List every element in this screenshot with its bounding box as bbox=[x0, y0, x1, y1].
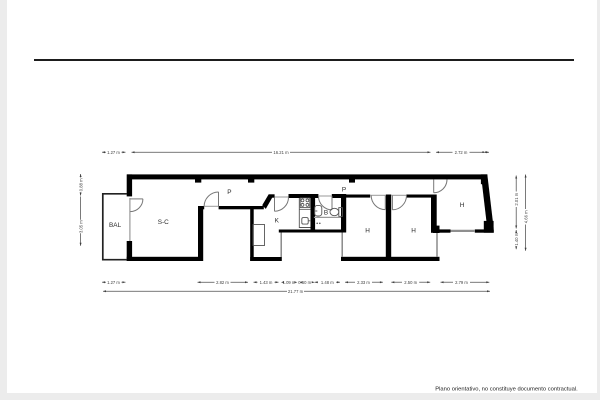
svg-text:21.77 m: 21.77 m bbox=[288, 289, 304, 294]
svg-text:16.21 m: 16.21 m bbox=[273, 150, 289, 155]
svg-text:BAL: BAL bbox=[109, 222, 122, 229]
svg-text:H: H bbox=[411, 227, 416, 234]
svg-text:S-C: S-C bbox=[158, 219, 169, 226]
svg-text:2.50 m: 2.50 m bbox=[404, 280, 417, 285]
svg-text:2.33 m: 2.33 m bbox=[357, 280, 370, 285]
svg-text:B: B bbox=[324, 210, 328, 217]
svg-text:1.48 m: 1.48 m bbox=[321, 280, 334, 285]
svg-text:1.27 m: 1.27 m bbox=[107, 150, 120, 155]
svg-text:2.82 m: 2.82 m bbox=[216, 280, 229, 285]
svg-text:Plano orientativo, no constitu: Plano orientativo, no constituye documen… bbox=[435, 386, 578, 392]
svg-text:1.09 m: 1.09 m bbox=[283, 280, 296, 285]
svg-text:2.01 m: 2.01 m bbox=[514, 192, 519, 205]
svg-text:H: H bbox=[365, 227, 370, 234]
svg-text:2.79 m: 2.79 m bbox=[455, 280, 468, 285]
svg-text:P: P bbox=[342, 187, 346, 194]
svg-text:1.40 m: 1.40 m bbox=[514, 232, 519, 245]
svg-text:0.60 m: 0.60 m bbox=[298, 280, 311, 285]
svg-text:P: P bbox=[227, 189, 231, 196]
svg-text:2.72 m: 2.72 m bbox=[455, 150, 468, 155]
svg-text:H: H bbox=[460, 202, 465, 209]
svg-text:0.88 m: 0.88 m bbox=[78, 178, 83, 191]
svg-text:1.27 m: 1.27 m bbox=[107, 280, 120, 285]
svg-text:1.43 m: 1.43 m bbox=[260, 280, 273, 285]
svg-text:3.05 m: 3.05 m bbox=[78, 220, 83, 233]
svg-text:4.66 m: 4.66 m bbox=[523, 210, 528, 223]
svg-text:K: K bbox=[275, 217, 280, 224]
